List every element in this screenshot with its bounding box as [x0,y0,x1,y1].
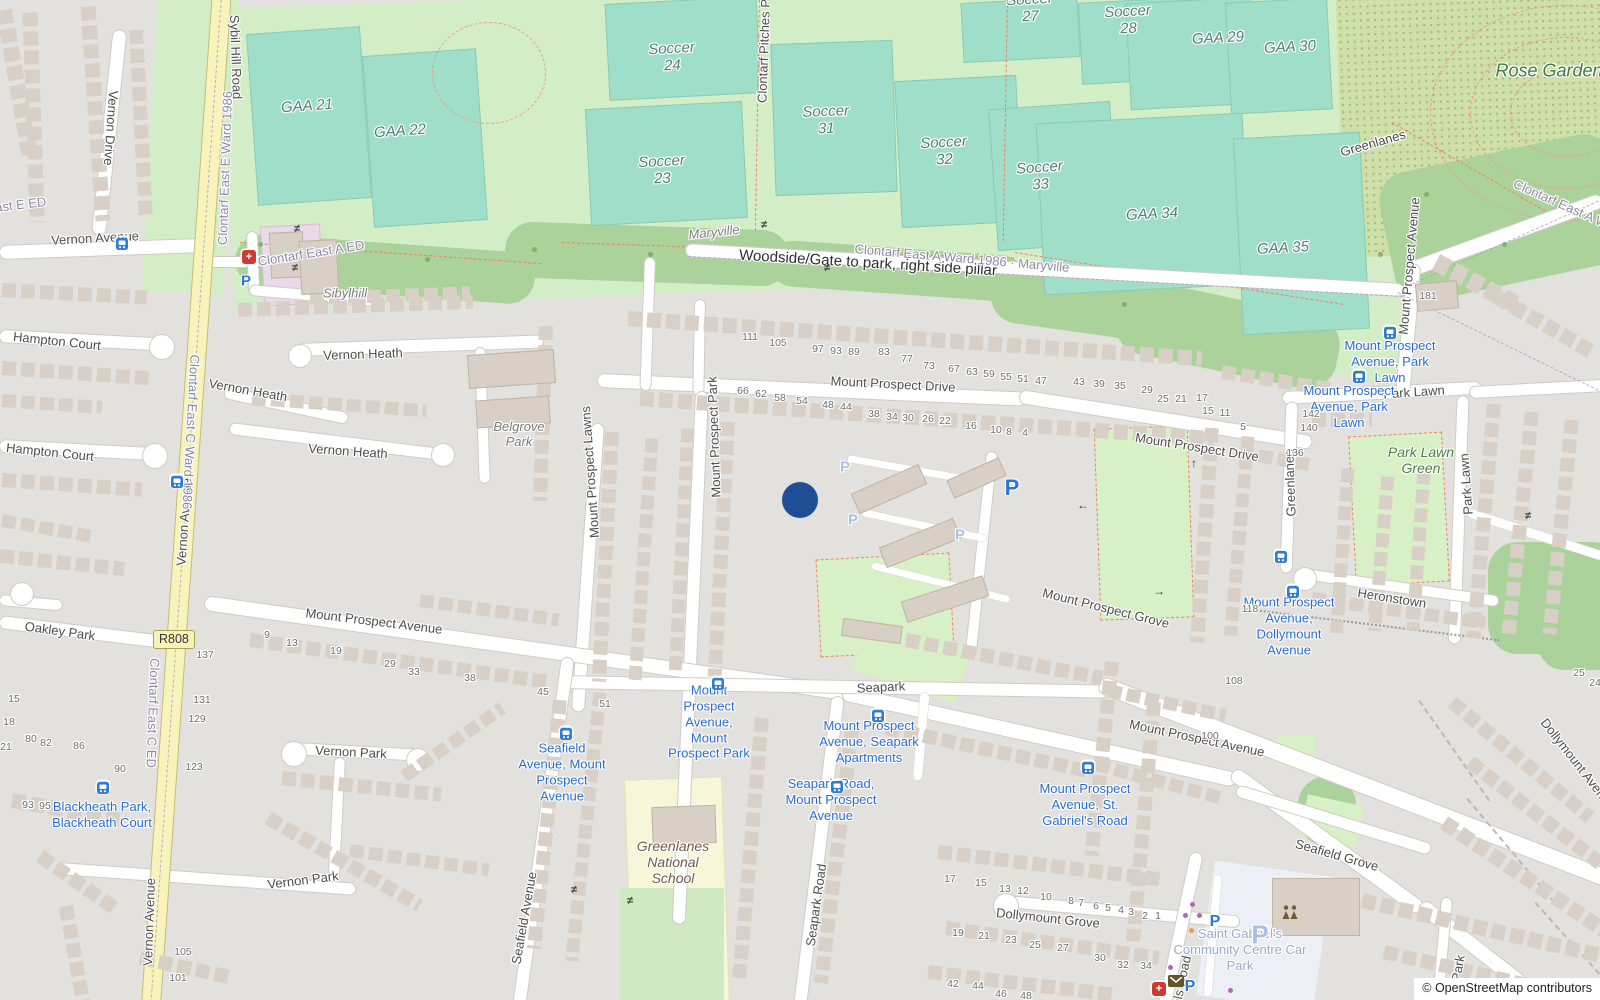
house-number: 21 [0,741,12,753]
house-number: 62 [755,388,767,400]
tree-icon [1424,192,1429,197]
pharmacy-icon: + [242,250,256,264]
school-label: Greenlanes National School [637,838,709,886]
house-number: 105 [769,337,787,349]
pitch-label: GAA 30 [1264,37,1317,57]
green-area-label: Park Lawn Green [1388,444,1454,476]
house-number: 18 [3,716,15,728]
house-number: 42 [947,978,959,990]
shop-dot-icon [1190,902,1195,907]
street-label: Vernon Heath [323,345,403,363]
bus-stop-icon [1275,550,1287,562]
bus-stop-icon [97,781,109,793]
pitch-label: Soccer 33 [1016,157,1065,194]
house-number: 54 [796,395,808,407]
building-row [1,514,97,543]
map-canvas[interactable]: Sybil Hill RoadVernon DriveVernon Avenue… [0,0,1600,1000]
house-number: 140 [1300,422,1318,434]
house-number: 90 [114,763,126,775]
one-way-arrow: ↑ [1191,456,1197,470]
house-number: 51 [599,698,611,710]
cul-de-sac [143,444,167,468]
street-label: Hampton Court [12,329,101,353]
pitch-label: GAA 34 [1126,204,1179,224]
tree-icon [258,242,263,247]
building-row [2,394,103,414]
bus-stop-icon [1384,326,1396,338]
house-number: 4 [1022,427,1028,439]
house-number: 105 [174,946,192,958]
building-row [129,30,153,215]
tree-icon [1502,242,1507,247]
gate-icon: ≠ [824,262,830,274]
bus-stop-icon [1353,370,1365,382]
house-number: 8 [1068,895,1074,907]
pitch-label: GAA 29 [1192,28,1245,48]
tree-icon [532,247,537,252]
route-ref-badge: R808 [153,630,195,649]
house-number: 137 [196,649,214,661]
bus-stop-label: Mount Prospect Avenue, Seapark Apartment… [810,718,928,766]
bus-stop-icon [171,475,183,487]
house-number: 51 [1017,373,1029,385]
parking-icon: P [1210,913,1221,931]
green-area-label: Rose Garden [1495,61,1600,82]
house-number: 15 [975,877,987,889]
parking-icon: P [1185,978,1196,996]
house-number: 34 [886,411,898,423]
gate-icon: ≠ [761,219,767,231]
house-number: 38 [868,408,880,420]
house-number: 142 [1302,408,1320,420]
house-number: 24 [1589,677,1600,689]
building [946,457,1006,498]
attribution[interactable]: © OpenStreetMap contributors [1414,978,1600,1000]
house-number: 93 [830,345,842,357]
building [467,349,556,389]
gate-icon: ≠ [1525,510,1531,522]
house-number: 55 [1000,371,1012,383]
house-number: 108 [1225,675,1243,687]
house-number: 21 [978,930,990,942]
house-number: 45 [537,686,549,698]
house-number: 66 [737,385,749,397]
tree-icon [1378,252,1383,257]
street-label: Vernon Park [315,743,387,762]
house-number: 181 [1419,290,1437,302]
bus-stop-label: Blackheath Park, Blackheath Court [32,799,172,831]
place-label: Sibylhill [323,286,367,301]
building-row [400,702,506,781]
house-number: 15 [1202,405,1214,417]
bus-stop-label: Saint Gabriel's Community Centre Car Par… [1170,926,1310,974]
bus-stop-icon [872,709,884,721]
building [851,464,928,514]
house-number: 11 [1220,407,1231,419]
house-number: 33 [408,666,420,678]
house-number: 4 [1118,904,1124,916]
cul-de-sac [432,444,454,466]
building-row [281,771,442,802]
house-number: 25 [1573,667,1585,679]
house-number: 100 [1201,730,1219,742]
house-number: 29 [384,658,396,670]
house-number: 17 [944,873,956,885]
house-number: 97 [812,343,824,355]
parking-area-icon: P [848,512,858,529]
house-number: 48 [1020,990,1032,1000]
building-row [1492,290,1595,358]
amenity-dot-icon [1189,928,1194,933]
building-row [628,438,658,683]
house-number: 39 [1093,378,1105,390]
building-row [0,549,125,576]
house-number: 8 [1006,426,1012,438]
shop-dot-icon [1197,913,1202,918]
cul-de-sac [11,583,33,605]
area-green [1094,425,1195,620]
house-number: 17 [1196,392,1208,404]
house-number: 82 [40,737,52,749]
house-number: 19 [330,645,342,657]
shop-dot-icon [1228,988,1233,993]
house-number: 123 [185,761,203,773]
shop-dot-icon [1183,913,1188,918]
street-label: Vernon Avenue [140,878,158,966]
house-number: 32 [1117,959,1129,971]
bus-stop-icon [1287,585,1299,597]
house-number: 35 [1114,380,1126,392]
house-number: 80 [25,733,37,745]
house-number: 58 [774,392,786,404]
one-way-arrow: → [1153,584,1165,598]
house-number: 93 [22,799,34,811]
house-number: 111 [742,331,758,343]
sports-pitch [246,26,372,206]
bus-stop-icon [1082,761,1094,773]
bus-stop-icon [712,677,724,689]
parking-area-icon: P [1251,920,1268,951]
tree-icon [425,257,430,262]
tree-icon [1122,302,1127,307]
house-number: 9 [264,629,270,641]
house-number: 118 [1242,603,1259,615]
pitch-label: Soccer 28 [1104,2,1152,38]
house-number: 44 [840,401,852,413]
house-number: 27 [1057,942,1069,954]
pitch-label: Soccer 32 [920,133,968,169]
house-number: 73 [923,360,935,372]
house-number: 101 [169,972,187,984]
house-number: 10 [1040,891,1052,903]
house-number: 25 [1157,393,1169,405]
house-number: 16 [965,420,977,432]
street-label: Park Lawn [1456,453,1475,515]
parking-area-icon: P [840,459,850,476]
building-row [2,473,143,497]
house-number: 136 [1286,447,1304,459]
house-number: 12 [1017,885,1029,897]
house-number: 5 [1105,902,1111,914]
house-number: 38 [464,672,476,684]
street-label: Mount Prospect Park [704,376,723,498]
community-centre-icon [1280,905,1300,924]
house-number: 59 [983,368,995,380]
road[interactable] [693,300,705,395]
house-number: 86 [73,740,85,752]
sports-pitch [1233,132,1370,335]
pitch-label: Soccer 27 [1006,0,1054,26]
pitch-label: Soccer 23 [638,152,686,188]
house-number: 22 [939,415,951,427]
house-number: 3 [1128,906,1134,918]
house-number: 2 [1142,910,1148,922]
house-number: 13 [999,883,1011,895]
parking-area-icon: P [955,527,965,544]
house-number: 25 [1029,939,1041,951]
house-number: 89 [848,346,860,358]
house-number: 26 [922,413,934,425]
bus-stop-icon [116,237,128,249]
bus-stop-label: Mount Prospect Avenue, Mount Prospect Pa… [668,682,750,761]
post-box-icon [1168,975,1184,987]
building-row [2,361,151,385]
house-number: 13 [286,637,298,649]
house-number: 1 [1155,910,1161,922]
street-label: Seapark [856,678,905,696]
house-number: 30 [1094,952,1106,964]
house-number: 129 [188,713,206,725]
place-label: Belgrove Park [493,419,544,449]
marker-dot[interactable] [782,482,818,518]
house-number: 83 [878,346,890,358]
cul-de-sac [289,345,311,367]
house-number: 29 [1141,384,1153,396]
sports-pitch [1225,0,1333,115]
house-number: 67 [948,363,960,375]
gate-icon: ≠ [294,223,300,235]
parking-icon: P [241,273,251,290]
house-number: 46 [995,988,1007,1000]
house-number: 48 [822,399,834,411]
bus-stop-icon [560,727,572,739]
parking-icon: P [1005,475,1020,501]
pitch-label: GAA 22 [373,121,426,142]
house-number: 95 [39,800,51,812]
cul-de-sac [282,742,306,766]
bus-stop-label: Seafield Avenue, Mount Prospect Avenue [514,740,610,803]
pharmacy-icon: + [1152,982,1166,996]
pitch-label: GAA 35 [1257,238,1310,258]
building-row [36,850,118,913]
cul-de-sac [150,335,174,359]
gate-icon: ≠ [292,262,298,274]
shop-dot-icon [1168,965,1173,970]
street-label: Greenlanes [1281,449,1298,517]
area-school-field [620,888,724,1000]
building-row [937,845,1162,886]
house-number: 5 [1240,421,1246,433]
one-way-arrow: ← [1077,498,1089,512]
house-number: 10 [990,424,1002,436]
house-number: 23 [1005,934,1017,946]
path-dashed-red-loop [432,22,546,124]
house-number: 63 [966,366,978,378]
road[interactable] [1449,396,1469,643]
house-number: 19 [952,927,964,939]
building-row [59,905,91,1000]
house-number: 6 [1093,900,1099,912]
bus-stop-icon [831,780,843,792]
gate-icon: ≠ [571,884,577,896]
house-number: 47 [1035,375,1047,387]
building-row [2,283,148,305]
pitch-label: Soccer 31 [802,102,850,138]
house-number: 15 [8,693,20,705]
bus-stop-label: Mount Prospect Avenue, St. Gabriel's Roa… [1027,781,1143,829]
house-number: 44 [972,980,984,992]
street-label: Vernon Drive [101,90,121,166]
house-number: 131 [193,694,211,706]
house-number: 43 [1073,376,1085,388]
house-number: 34 [1140,960,1152,972]
pitch-label: GAA 21 [280,96,333,117]
house-number: 7 [1078,897,1084,909]
house-number: 77 [901,353,913,365]
house-number: 21 [1175,393,1187,405]
tree-icon [648,252,653,257]
gate-icon: ≠ [627,895,633,907]
pitch-label: Soccer 24 [648,39,696,75]
street-label: Sybil Hill Road [227,14,245,99]
house-number: 30 [902,412,914,424]
